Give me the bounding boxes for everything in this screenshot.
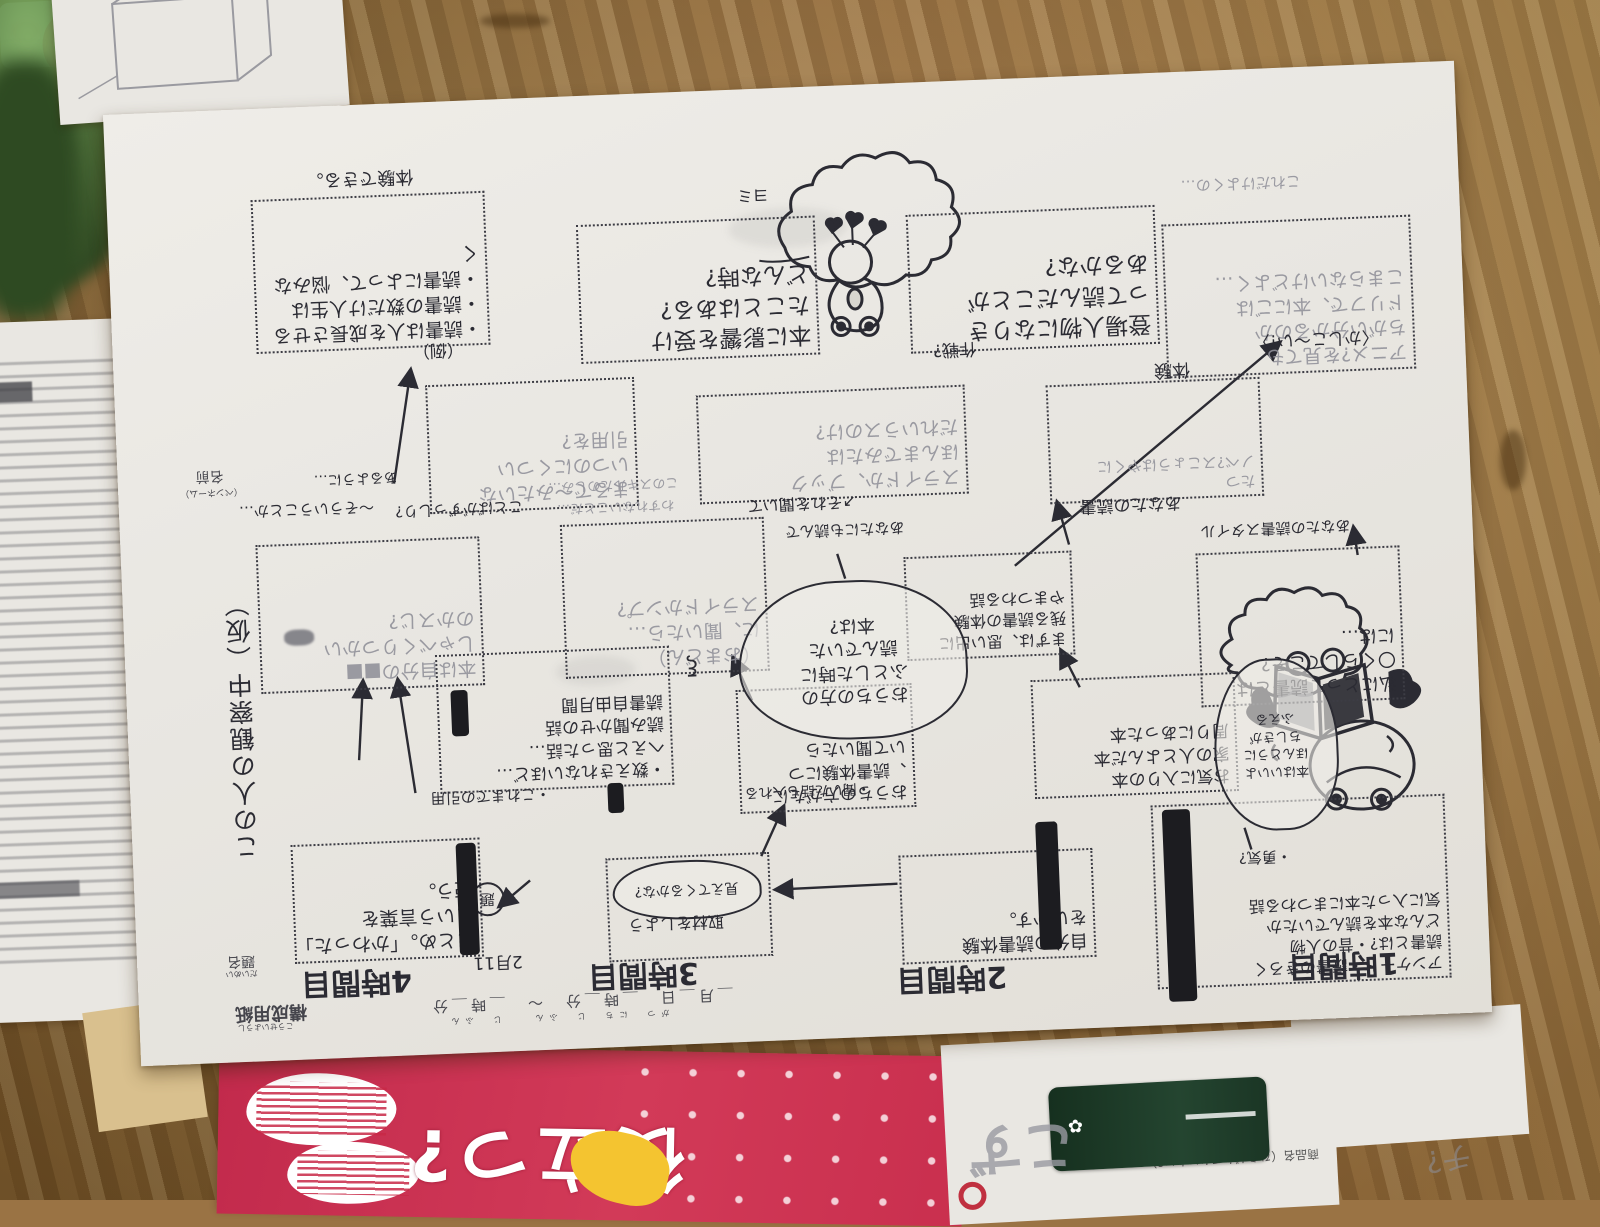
box-matome: まとめ。「かわった」という言葉を使う。 (290, 837, 484, 963)
pencil-scribble-blob (284, 629, 315, 646)
period-label-2: 2時間目 (896, 957, 1009, 1005)
note-example: （例） (412, 339, 464, 366)
note-anatanimo: あなたにも読んで (785, 517, 905, 543)
wood-knot (1500, 430, 1526, 490)
connector-arrow-4 (398, 680, 416, 793)
note-yuki: ・勇気? (1238, 846, 1292, 869)
note-aruyouni: あるように… (313, 467, 398, 490)
note-souiukoto: 〜そういうことか… (239, 496, 375, 522)
printed-name-label: 名前 (195, 466, 224, 487)
box-character: 登場人物になりきって読んだことがあるかな? (906, 205, 1160, 354)
frog-speech-bubble-text: 本はいいよほんとうにちしきがふえる (1242, 708, 1310, 781)
box-quotes-text: ・数えきれないほど…へえと思った話…読み聞かせの話読書自由月間 (439, 687, 673, 790)
speech-bubble-2 (287, 1141, 420, 1205)
note-squiggle: ξ (685, 654, 698, 679)
bold-header-fragment-2 (0, 880, 80, 899)
period-label-3: 1時間目 (1287, 944, 1400, 992)
speech-bubble (246, 1072, 397, 1147)
pencil-note: こず (964, 1108, 1079, 1195)
box-anime-text: アニメ?を見てもちがい分かるのかドリフで、本にごはこまらないけどよく… (1165, 260, 1414, 374)
note-inyou: ・これまでの引用 (430, 784, 551, 810)
printed-sheet-kana: こうせいようし (238, 1020, 294, 1033)
box-books-around-text: お気に入りの本家の人とよんだ本周りにあった本 (1034, 716, 1237, 795)
box-slide-text: スライドか、ブックほんまでみたはだれいうスのけ? (699, 410, 967, 500)
circled-glyph-text: 題 (480, 888, 496, 910)
connector-arrow-1 (759, 807, 785, 856)
note-taiken: 体験 (1154, 358, 1191, 385)
box-matome-text: まとめ。「かわった」という言葉を使う。 (294, 873, 482, 960)
marker-redaction-4 (450, 690, 469, 737)
connector-arrow-2 (777, 884, 898, 890)
box-simile-text: まるで〜みたいないつのにくつい引用を? (429, 423, 637, 510)
note-shuzai: 取材をしよう (628, 911, 725, 939)
printed-name-sub: （ペンネーム） (180, 486, 243, 502)
note-style: あなたの読書スタイル (1200, 515, 1351, 542)
photo-of-desk: { "scene": { "desk_colors": {"base": "#9… (0, 0, 1600, 1200)
red-booklet-cover: 役立つ? (217, 1044, 965, 1227)
box-quotes: ・数えきれないほど…へえと思った話…読み聞かせの話読書自由月間 (435, 646, 674, 794)
marker-redaction-3 (607, 783, 624, 814)
connector-arrow-7 (1057, 503, 1069, 545)
note-kotoba: ことばがずっしり? (395, 496, 524, 522)
box-books-around: お気に入りの本家の人とよんだ本周りにあった本 (1030, 672, 1239, 799)
item-label-bar (1186, 1111, 1256, 1120)
box-your-reading: たつノベ?スこょうはやくに (1046, 377, 1265, 504)
note-sorekiite: ↗それを聞いて (747, 491, 857, 519)
wood-knot (480, 14, 550, 28)
box-example: ・読書は人を成長させる・読書の数だけ人生は・読書によって、悩みなく (251, 191, 491, 354)
main-worksheet: ・読書は人を成長させる・読書の数だけ人生は・読書によって、悩みなく本に影響を受け… (103, 61, 1492, 1066)
tiny-bubble-text (256, 1081, 387, 1137)
note-yomi: ヨミ (736, 184, 769, 209)
connector-arrow-3 (356, 682, 366, 760)
box-use-experience-text: 自分の読書体験をいかす。 (903, 901, 1095, 960)
box-slide: スライドか、ブックほんまでみたはだれいうスのけ? (696, 385, 969, 505)
product-paper: 商品名（ひらがなでかいたい?） ✿ こず (941, 1025, 1340, 1225)
box-use-experience: 自分の読書体験をいかす。 (898, 848, 1096, 965)
bold-header-fragment (0, 381, 33, 403)
note-koredake: これだけよくの… (1180, 171, 1301, 197)
note-skill1: このスキルたのしみ… (548, 474, 679, 498)
box-character-text: 登場人物になりきって読んだことがあるかな? (909, 245, 1158, 350)
note-taiken-dekiru: 体験できる。 (305, 165, 414, 195)
period-label-0: 4時間目 (300, 961, 413, 1009)
tiny-bubble-text-2 (297, 1150, 410, 1196)
marker-redaction-1 (1035, 821, 1062, 950)
note-date: 2月11 (473, 951, 523, 978)
box-influence-text: 本に影響を受けたことはある?どんな時? (579, 255, 818, 359)
cloud-family-books-text: おうちの方のふとした時に読んでいた本は? (797, 611, 909, 709)
note-kashikoi: 〈かしこ〜い!〉 (1253, 326, 1380, 356)
box-influence: 本に影響を受けたことはある?どんな時? (576, 216, 820, 364)
box-example-text: ・読書は人を成長させる・読書の数だけ人生は・読書によって、悩みなく (254, 236, 488, 349)
printed-title-kana: だいめい (225, 967, 257, 979)
note-sakusen: 作戦? (933, 338, 977, 365)
connector-line-0 (837, 554, 845, 579)
cloud-mieru-text: 見えてくるかな? (635, 879, 740, 901)
note-skill2: わすれないことだ… (557, 496, 675, 520)
cloud-family-books: おうちの方のふとした時に読んでいた本は? (735, 576, 970, 744)
note-anata-dokusho: あなたの読書 (1079, 492, 1182, 521)
green-item-photo: ✿ (1048, 1076, 1270, 1171)
